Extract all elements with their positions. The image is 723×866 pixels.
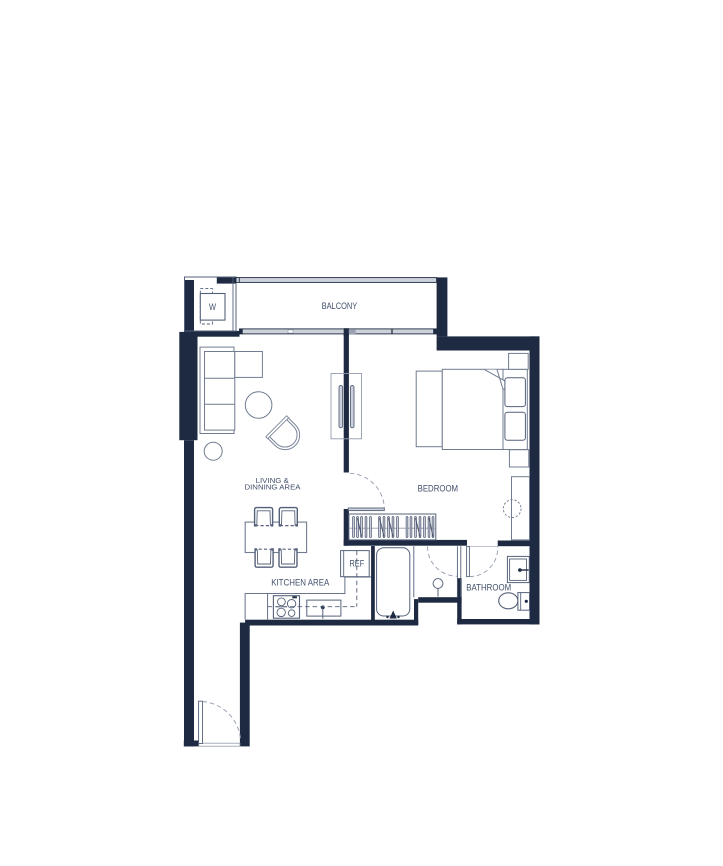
svg-text:KITCHEN AREA: KITCHEN AREA (271, 578, 330, 588)
svg-text:BALCONY: BALCONY (322, 301, 358, 311)
svg-text:DINNING AREA: DINNING AREA (245, 482, 301, 491)
svg-text:BATHROOM: BATHROOM (466, 583, 511, 593)
svg-text:BEDROOM: BEDROOM (418, 484, 459, 494)
svg-text:W: W (209, 302, 216, 312)
